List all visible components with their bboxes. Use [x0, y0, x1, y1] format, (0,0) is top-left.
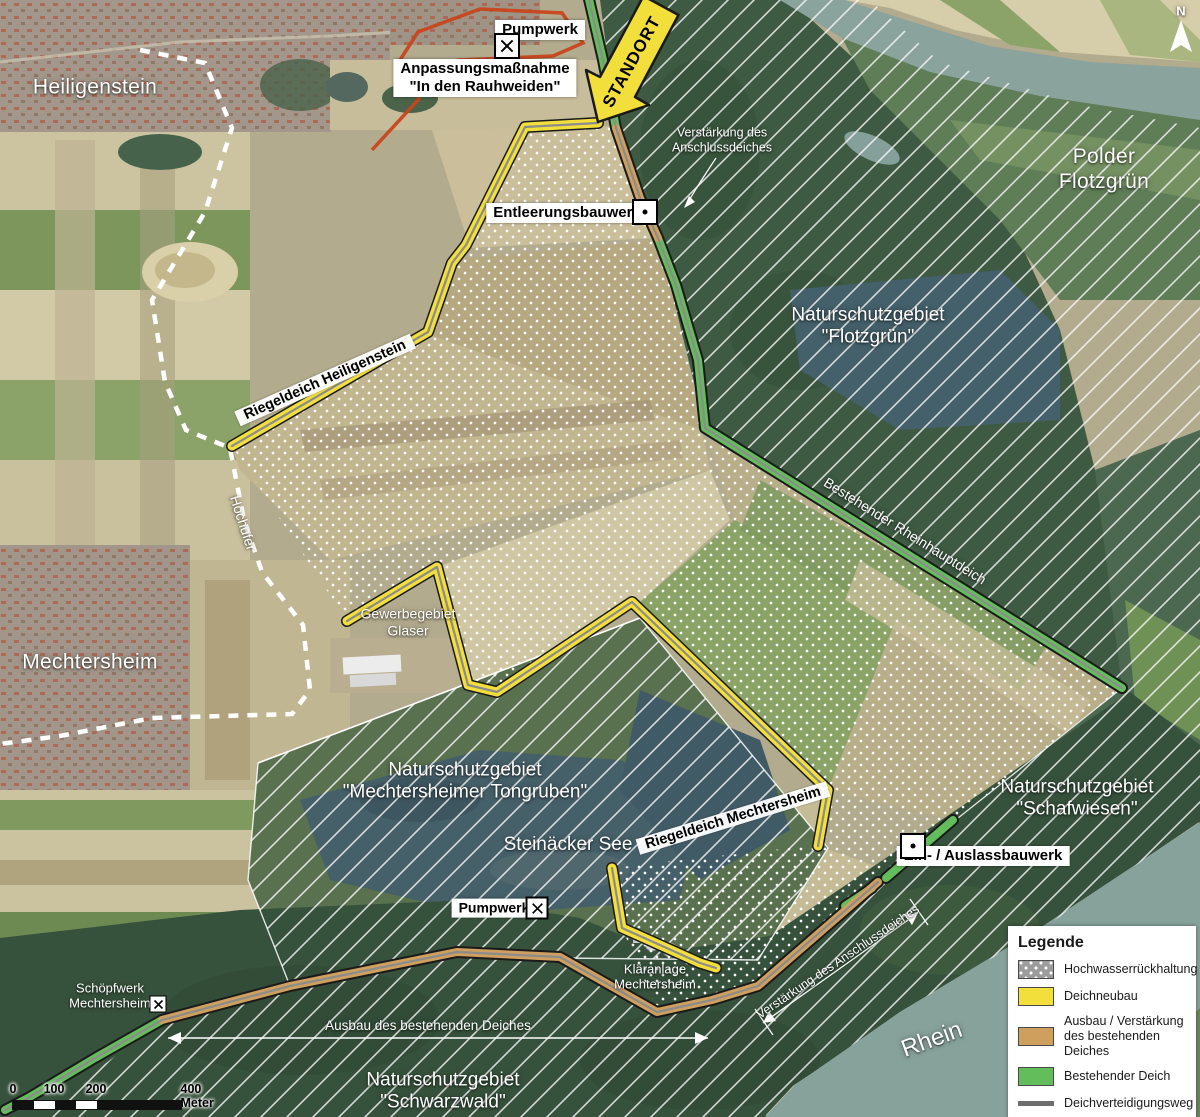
legend-item-hochwasserrueckhaltung: Hochwasserrückhaltung — [1018, 960, 1186, 979]
pump-icon-sued — [526, 897, 549, 920]
swatch-bestehender-deich — [1018, 1067, 1054, 1086]
scale-tick-0: 0 — [10, 1082, 17, 1096]
structure-dot-icon-entleerung — [632, 199, 658, 225]
scale-tick-100: 100 — [44, 1082, 65, 1096]
map-canvas: Heiligenstein Polder Flotzgrün Naturschu… — [0, 0, 1200, 1117]
swatch-hochwasserrueckhaltung — [1018, 960, 1054, 979]
pump-icon-nord — [494, 33, 520, 59]
legend-item-deichverteidigungsweg: Deichverteidigungsweg — [1018, 1094, 1186, 1113]
legend-item-bestehender-deich: Bestehender Deich — [1018, 1067, 1186, 1086]
swatch-deichverteidigungsweg — [1018, 1094, 1054, 1113]
structure-dot-icon-ein-auslass — [900, 833, 926, 859]
legend: Legende Hochwasserrückhaltung Deichneuba… — [1008, 926, 1196, 1117]
scale-tick-400: 400 Meter — [181, 1082, 238, 1110]
scale-bar: 0 100 200 400 Meter — [6, 1082, 266, 1114]
scale-tick-200: 200 — [86, 1082, 107, 1096]
legend-title: Legende — [1018, 934, 1186, 952]
pump-icon-schoepfwerk — [150, 996, 167, 1013]
swatch-deichneubau — [1018, 987, 1054, 1006]
legend-item-deichneubau: Deichneubau — [1018, 987, 1186, 1006]
scale-bar-segments — [12, 1100, 182, 1110]
swatch-ausbau — [1018, 1027, 1054, 1046]
legend-item-ausbau: Ausbau / Verstärkung des bestehenden Dei… — [1018, 1014, 1186, 1059]
